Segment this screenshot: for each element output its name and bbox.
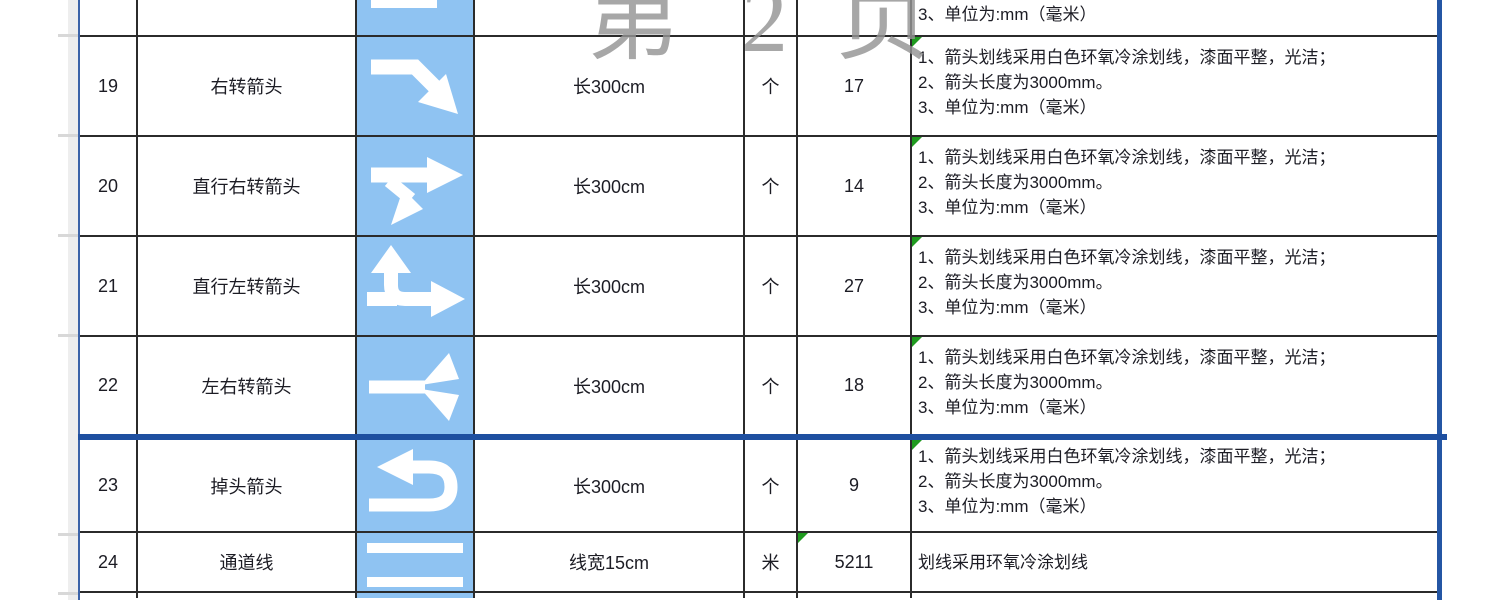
arrow-fragment-icon <box>357 0 473 35</box>
spec-text: 长300cm <box>573 373 645 399</box>
note-line: 1、箭头划线采用白色环氧冷涂划线，漆面平整，光洁； <box>918 45 1335 70</box>
note-line: 2、箭头长度为3000mm。 <box>918 370 1113 395</box>
cell-legend[interactable] <box>357 37 475 135</box>
unit-text: 米 <box>762 549 780 575</box>
unit-text: 个 <box>762 473 780 499</box>
qty-text: 18 <box>844 375 864 396</box>
table-row-24: 24 通道线 线宽15cm 米 5211 划线采用环氧冷涂划线 <box>80 533 1437 593</box>
cell-unit[interactable] <box>745 593 798 598</box>
cell-notes[interactable]: 1、箭头划线采用白色环氧冷涂划线，漆面平整，光洁； 2、箭头长度为3000mm。… <box>912 337 1437 434</box>
note-line: 划线采用环氧冷涂划线 <box>918 550 1088 575</box>
cell-qty[interactable]: 9 <box>798 440 912 531</box>
left-right-turn-arrow-icon <box>357 337 473 434</box>
comment-indicator <box>912 337 922 347</box>
cell-name[interactable]: 右转箭头 <box>138 37 357 135</box>
item-name: 直行左转箭头 <box>193 273 301 299</box>
cell-name[interactable]: 通道线 <box>138 533 357 591</box>
items-table: 3、单位为:mm（毫米） 19 右转箭头 长300cm 个 17 1、箭头划线采… <box>80 0 1437 598</box>
note-line: 2、箭头长度为3000mm。 <box>918 270 1113 295</box>
cell-name[interactable]: 直行右转箭头 <box>138 137 357 235</box>
row-boundary-tick <box>58 334 78 337</box>
note-line: 3、单位为:mm（毫米） <box>918 295 1097 320</box>
cell-qty[interactable]: 27 <box>798 237 912 335</box>
item-name: 右转箭头 <box>211 73 283 99</box>
row-number: 22 <box>98 375 118 396</box>
cell-spec[interactable]: 长300cm <box>475 237 745 335</box>
row-number: 19 <box>98 76 118 97</box>
note-line: 2、箭头长度为3000mm。 <box>918 70 1113 95</box>
note-line: 1、箭头划线采用白色环氧冷涂划线，漆面平整，光洁； <box>918 145 1335 170</box>
table-row-22: 22 左右转箭头 长300cm 个 18 1、箭头划线采用白色环氧冷涂划线，漆面… <box>80 337 1437 434</box>
comment-indicator <box>798 533 808 543</box>
cell-spec[interactable] <box>475 0 745 35</box>
cell-no[interactable]: 24 <box>80 533 138 591</box>
comment-indicator <box>912 137 922 147</box>
cell-notes[interactable]: 1、箭头划线采用白色环氧冷涂划线，漆面平整，光洁； 2、箭头长度为3000mm。… <box>912 237 1437 335</box>
row-number: 23 <box>98 475 118 496</box>
cell-unit[interactable]: 个 <box>745 137 798 235</box>
item-name: 通道线 <box>220 549 274 575</box>
cell-unit[interactable]: 米 <box>745 533 798 591</box>
spec-text: 长300cm <box>573 173 645 199</box>
row-boundary-tick <box>58 234 78 237</box>
row-number: 21 <box>98 276 118 297</box>
note-line: 1、箭头划线采用白色环氧冷涂划线，漆面平整，光洁； <box>918 245 1335 270</box>
cell-spec[interactable]: 长300cm <box>475 440 745 531</box>
cell-qty[interactable] <box>798 593 912 598</box>
cell-legend[interactable] <box>357 0 475 35</box>
cell-unit[interactable]: 个 <box>745 37 798 135</box>
table-row-21: 21 直行左转箭头 长300cm 个 27 1、箭头划线采用白色环氧冷涂划线，漆… <box>80 237 1437 337</box>
qty-text: 17 <box>844 76 864 97</box>
note-line: 3、单位为:mm（毫米） <box>918 95 1097 120</box>
unit-text: 个 <box>762 73 780 99</box>
cell-notes[interactable]: 3、单位为:mm（毫米） <box>912 0 1437 35</box>
straight-left-turn-arrow-icon <box>357 237 473 335</box>
table-row-23: 23 掉头箭头 长300cm 个 9 1、箭头划线采用白色环氧冷涂划线，漆面平整… <box>80 440 1437 533</box>
note-line: 3、单位为:mm（毫米） <box>918 494 1097 519</box>
table-row-partial-bottom <box>80 593 1437 598</box>
cell-legend[interactable] <box>357 440 475 531</box>
row-boundary-tick <box>58 533 78 536</box>
cell-no[interactable]: 23 <box>80 440 138 531</box>
cell-name[interactable]: 掉头箭头 <box>138 440 357 531</box>
comment-indicator <box>912 37 922 47</box>
cell-qty[interactable]: 18 <box>798 337 912 434</box>
cell-notes[interactable]: 划线采用环氧冷涂划线 <box>912 533 1437 591</box>
qty-text: 14 <box>844 176 864 197</box>
cell-spec[interactable]: 线宽15cm <box>475 533 745 591</box>
cell-no[interactable]: 21 <box>80 237 138 335</box>
cell-no[interactable] <box>80 0 138 35</box>
comment-indicator <box>912 440 922 450</box>
item-name: 左右转箭头 <box>202 373 292 399</box>
cell-name[interactable]: 左右转箭头 <box>138 337 357 434</box>
row-boundary-tick <box>58 592 78 595</box>
u-turn-arrow-icon <box>357 440 473 531</box>
unit-text: 个 <box>762 373 780 399</box>
cell-qty[interactable]: 5211 <box>798 533 912 591</box>
cell-unit[interactable]: 个 <box>745 337 798 434</box>
note-line: 2、箭头长度为3000mm。 <box>918 170 1113 195</box>
right-turn-arrow-icon <box>357 37 473 135</box>
channel-lines-icon <box>357 533 473 591</box>
comment-indicator <box>912 237 922 247</box>
spec-text: 长300cm <box>573 73 645 99</box>
unit-text: 个 <box>762 173 780 199</box>
cell-no[interactable]: 22 <box>80 337 138 434</box>
cell-spec[interactable]: 长300cm <box>475 337 745 434</box>
spec-text: 长300cm <box>573 273 645 299</box>
cell-no[interactable]: 19 <box>80 37 138 135</box>
note-line: 2、箭头长度为3000mm。 <box>918 469 1113 494</box>
cell-qty[interactable]: 14 <box>798 137 912 235</box>
horizontal-page-break-line <box>78 434 1447 440</box>
cell-unit[interactable]: 个 <box>745 440 798 531</box>
item-name: 掉头箭头 <box>211 473 283 499</box>
cell-legend[interactable] <box>357 137 475 235</box>
spec-text: 长300cm <box>573 473 645 499</box>
spreadsheet-canvas: 3、单位为:mm（毫米） 19 右转箭头 长300cm 个 17 1、箭头划线采… <box>0 0 1510 600</box>
cell-legend[interactable] <box>357 593 475 598</box>
row-number: 24 <box>98 552 118 573</box>
cell-spec[interactable]: 长300cm <box>475 37 745 135</box>
straight-right-turn-arrow-icon <box>357 137 473 235</box>
cell-qty[interactable]: 17 <box>798 37 912 135</box>
row-boundary-tick <box>58 134 78 137</box>
cell-no[interactable] <box>80 593 138 598</box>
cell-legend[interactable] <box>357 237 475 335</box>
spec-text: 线宽15cm <box>569 549 649 575</box>
cell-notes[interactable]: 1、箭头划线采用白色环氧冷涂划线，漆面平整，光洁； 2、箭头长度为3000mm。… <box>912 137 1437 235</box>
cell-name[interactable] <box>138 0 357 35</box>
cell-no[interactable]: 20 <box>80 137 138 235</box>
cell-notes[interactable]: 1、箭头划线采用白色环氧冷涂划线，漆面平整，光洁； 2、箭头长度为3000mm。… <box>912 440 1437 531</box>
cell-legend[interactable] <box>357 533 475 591</box>
unit-text: 个 <box>762 273 780 299</box>
table-row-20: 20 直行右转箭头 长300cm 个 14 1、箭头划线采用白色环氧冷涂划线，漆… <box>80 137 1437 237</box>
item-name: 直行右转箭头 <box>193 173 301 199</box>
cell-qty[interactable] <box>798 0 912 35</box>
cell-unit[interactable]: 个 <box>745 237 798 335</box>
row-boundary-tick <box>58 34 78 37</box>
note-line: 3、单位为:mm（毫米） <box>918 395 1097 420</box>
qty-text: 5211 <box>835 552 874 573</box>
print-margin-gutter <box>68 0 78 600</box>
note-line: 1、箭头划线采用白色环氧冷涂划线，漆面平整，光洁； <box>918 444 1335 469</box>
cell-unit[interactable] <box>745 0 798 35</box>
cell-legend[interactable] <box>357 337 475 434</box>
cell-name[interactable]: 直行左转箭头 <box>138 237 357 335</box>
cell-notes[interactable] <box>912 593 1437 599</box>
note-line: 3、单位为:mm（毫米） <box>918 195 1097 220</box>
qty-text: 9 <box>849 475 859 496</box>
cell-spec[interactable] <box>475 593 745 598</box>
cell-notes[interactable]: 1、箭头划线采用白色环氧冷涂划线，漆面平整，光洁； 2、箭头长度为3000mm。… <box>912 37 1437 135</box>
row-number: 20 <box>98 176 118 197</box>
note-line: 3、单位为:mm（毫米） <box>918 2 1097 27</box>
table-row-19: 19 右转箭头 长300cm 个 17 1、箭头划线采用白色环氧冷涂划线，漆面平… <box>80 37 1437 137</box>
print-area-right-border <box>1437 0 1442 600</box>
note-line: 1、箭头划线采用白色环氧冷涂划线，漆面平整，光洁； <box>918 345 1335 370</box>
qty-text: 27 <box>844 276 864 297</box>
cell-name[interactable] <box>138 593 357 598</box>
print-area-left-border <box>78 0 80 600</box>
table-row-partial-top: 3、单位为:mm（毫米） <box>80 0 1437 37</box>
cell-spec[interactable]: 长300cm <box>475 137 745 235</box>
